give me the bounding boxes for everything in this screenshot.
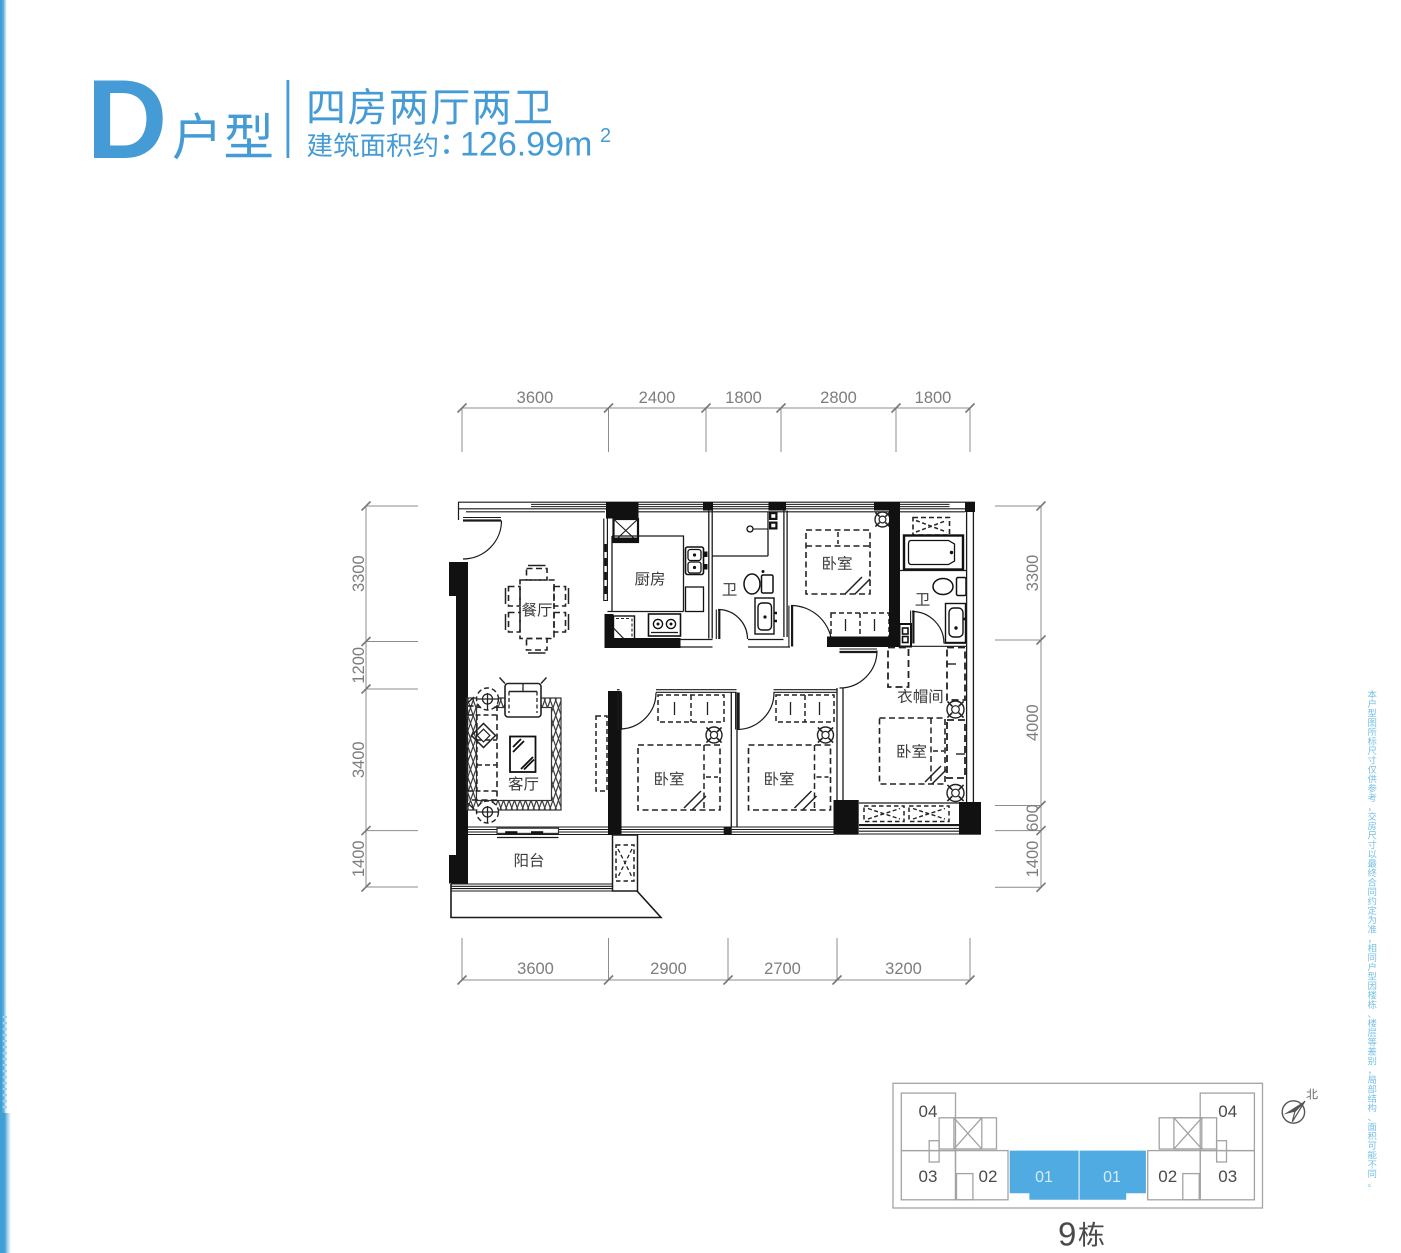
svg-text:1400: 1400 xyxy=(350,840,368,877)
svg-text:1800: 1800 xyxy=(725,389,762,407)
svg-text:03: 03 xyxy=(919,1167,938,1186)
svg-text:01: 01 xyxy=(1103,1169,1121,1186)
svg-text:3600: 3600 xyxy=(517,960,554,978)
svg-text:3400: 3400 xyxy=(350,741,368,778)
svg-text:02: 02 xyxy=(979,1167,998,1186)
svg-text:2900: 2900 xyxy=(650,960,687,978)
svg-text:01: 01 xyxy=(1035,1169,1053,1186)
svg-text:3300: 3300 xyxy=(350,555,368,592)
svg-text:9: 9 xyxy=(1058,1216,1076,1253)
svg-text:600: 600 xyxy=(1024,804,1042,832)
svg-text:4000: 4000 xyxy=(1024,704,1042,741)
svg-text:03: 03 xyxy=(1218,1167,1237,1186)
svg-text:02: 02 xyxy=(1158,1167,1177,1186)
svg-text:2400: 2400 xyxy=(639,389,676,407)
svg-text:D: D xyxy=(87,57,168,182)
svg-text:04: 04 xyxy=(919,1102,938,1121)
svg-text:1200: 1200 xyxy=(350,647,368,684)
svg-text:2800: 2800 xyxy=(820,389,857,407)
svg-text:126.99m: 126.99m xyxy=(460,126,592,164)
svg-text:1800: 1800 xyxy=(915,389,952,407)
svg-text:2: 2 xyxy=(600,125,611,147)
svg-text:2700: 2700 xyxy=(764,960,801,978)
svg-text:3200: 3200 xyxy=(885,960,922,978)
svg-text:04: 04 xyxy=(1218,1102,1237,1121)
svg-text:1400: 1400 xyxy=(1024,841,1042,878)
svg-text:3600: 3600 xyxy=(517,389,554,407)
svg-text:3300: 3300 xyxy=(1024,555,1042,592)
